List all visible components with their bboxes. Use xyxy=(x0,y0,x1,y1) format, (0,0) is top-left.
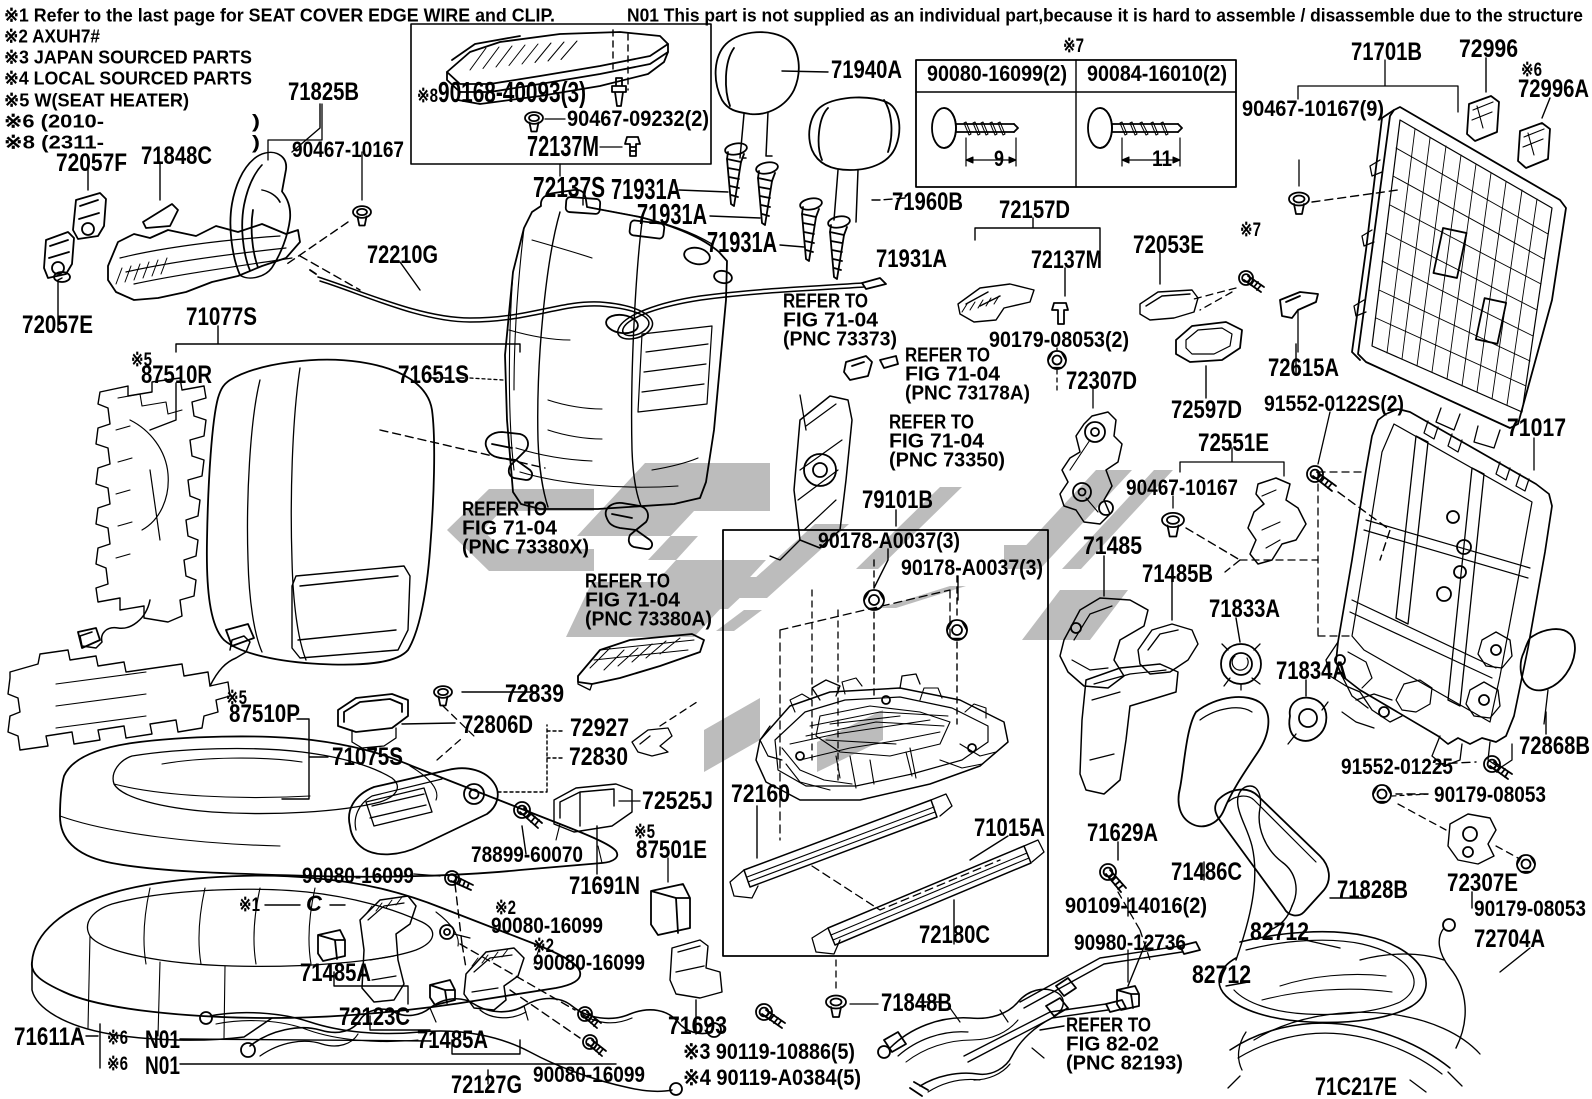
svg-text:71C217E: 71C217E xyxy=(1315,1074,1397,1099)
svg-text:72996A: 72996A xyxy=(1518,76,1589,103)
svg-text:71629A: 71629A xyxy=(1087,820,1158,847)
svg-text:72307D: 72307D xyxy=(1066,368,1137,395)
svg-text:72525J: 72525J xyxy=(642,788,713,815)
svg-text:91552-01225: 91552-01225 xyxy=(1341,754,1453,779)
svg-text:72123C: 72123C xyxy=(339,1004,410,1031)
svg-text:72137M: 72137M xyxy=(527,131,599,163)
svg-text:72127G: 72127G xyxy=(451,1072,522,1099)
svg-text:90080-16099: 90080-16099 xyxy=(533,1062,645,1087)
svg-text:90179-08053(2): 90179-08053(2) xyxy=(989,327,1129,352)
svg-text:72868B: 72868B xyxy=(1519,733,1590,760)
svg-text:90179-08053: 90179-08053 xyxy=(1434,782,1546,807)
svg-text:90084-16010(2): 90084-16010(2) xyxy=(1087,61,1227,86)
svg-text:71485: 71485 xyxy=(1083,533,1142,560)
svg-text:72157D: 72157D xyxy=(999,197,1070,224)
svg-text:90080-16099: 90080-16099 xyxy=(491,913,603,938)
svg-text:72210G: 72210G xyxy=(367,242,438,269)
svg-text:78899-60070: 78899-60070 xyxy=(471,842,583,867)
svg-text:90080-16099: 90080-16099 xyxy=(302,863,414,888)
svg-text:82712: 82712 xyxy=(1192,962,1251,989)
svg-text:71834A: 71834A xyxy=(1276,658,1347,685)
svg-text:90467-10167: 90467-10167 xyxy=(1126,475,1238,500)
svg-text:72160: 72160 xyxy=(731,781,790,808)
svg-text:72057E: 72057E xyxy=(22,312,93,339)
svg-text:90467-10167(9): 90467-10167(9) xyxy=(1242,96,1384,121)
svg-text:※2 AXUH7#: ※2 AXUH7# xyxy=(4,26,100,47)
svg-text:72806D: 72806D xyxy=(462,712,533,739)
svg-text:※3 JAPAN SOURCED PARTS: ※3 JAPAN SOURCED PARTS xyxy=(4,47,252,68)
svg-text:72830: 72830 xyxy=(569,744,628,771)
svg-text:※6: ※6 xyxy=(107,1028,128,1049)
svg-text:90080-16099(2): 90080-16099(2) xyxy=(927,61,1067,86)
svg-text:※4 LOCAL SOURCED PARTS: ※4 LOCAL SOURCED PARTS xyxy=(4,68,252,89)
svg-text:11: 11 xyxy=(1152,146,1172,171)
svg-text:71848C: 71848C xyxy=(141,143,212,170)
svg-text:72704A: 72704A xyxy=(1474,926,1545,953)
svg-text:72137S: 72137S xyxy=(533,172,605,204)
svg-text:71075S: 71075S xyxy=(332,744,403,771)
svg-text:90178-A0037(3): 90178-A0037(3) xyxy=(818,528,960,553)
svg-text:N01: N01 xyxy=(145,1053,180,1080)
svg-text:90467-10167: 90467-10167 xyxy=(292,137,404,162)
svg-text:71931A: 71931A xyxy=(876,246,947,273)
svg-text:(PNC 82193): (PNC 82193) xyxy=(1066,1053,1183,1075)
svg-text:71485A: 71485A xyxy=(300,960,371,987)
svg-text:71833A: 71833A xyxy=(1209,596,1280,623)
svg-text:72180C: 72180C xyxy=(919,922,990,949)
svg-text:90467-09232(2): 90467-09232(2) xyxy=(567,106,709,131)
svg-text:72996: 72996 xyxy=(1459,36,1518,63)
svg-text:79101B: 79101B xyxy=(862,487,933,514)
svg-text:C: C xyxy=(306,891,323,916)
svg-text:72307E: 72307E xyxy=(1447,870,1518,897)
svg-text:90179-08053: 90179-08053 xyxy=(1474,896,1586,921)
svg-text:90178-A0037(3): 90178-A0037(3) xyxy=(901,555,1043,580)
svg-text:71848B: 71848B xyxy=(881,990,952,1017)
svg-text:71701B: 71701B xyxy=(1351,39,1422,66)
svg-text:72927: 72927 xyxy=(570,715,629,742)
svg-text:※5 W(SEAT HEATER): ※5 W(SEAT HEATER) xyxy=(4,90,189,111)
svg-text:(PNC 73373): (PNC 73373) xyxy=(783,329,897,351)
svg-text:(PNC 73178A): (PNC 73178A) xyxy=(905,383,1030,405)
svg-text:71693: 71693 xyxy=(668,1013,727,1040)
svg-text:72839: 72839 xyxy=(505,681,564,708)
svg-text:90080-16099: 90080-16099 xyxy=(533,950,645,975)
svg-text:71931A: 71931A xyxy=(707,227,777,259)
svg-text:71485A: 71485A xyxy=(417,1027,488,1054)
svg-text:※1: ※1 xyxy=(239,895,260,916)
svg-text:※7: ※7 xyxy=(1240,220,1261,241)
svg-text:): ) xyxy=(252,132,260,153)
svg-text:72615A: 72615A xyxy=(1268,355,1339,382)
svg-text:71017: 71017 xyxy=(1507,415,1566,442)
svg-text:): ) xyxy=(252,111,260,132)
svg-text:9: 9 xyxy=(994,146,1004,171)
svg-text:71486C: 71486C xyxy=(1171,859,1242,886)
svg-text:72053E: 72053E xyxy=(1133,232,1204,259)
svg-text:72057F: 72057F xyxy=(56,150,127,177)
svg-text:(PNC 73380X): (PNC 73380X) xyxy=(462,537,589,559)
svg-text:N01 This part is not supplied: N01 This part is not supplied as an indi… xyxy=(627,5,1583,26)
svg-text:82712: 82712 xyxy=(1250,919,1309,946)
svg-text:※7: ※7 xyxy=(1063,36,1084,57)
svg-text:87501E: 87501E xyxy=(636,837,707,864)
svg-text:87510R: 87510R xyxy=(141,362,212,389)
svg-text:71940A: 71940A xyxy=(831,57,902,84)
svg-text:72551E: 72551E xyxy=(1198,430,1269,457)
svg-text:71931A: 71931A xyxy=(637,199,707,231)
svg-text:※8: ※8 xyxy=(417,86,438,107)
svg-text:※3 90119-10886(5): ※3 90119-10886(5) xyxy=(683,1039,855,1064)
svg-text:(PNC 73380A): (PNC 73380A) xyxy=(585,609,712,631)
svg-text:71015A: 71015A xyxy=(974,815,1045,842)
svg-text:71611A: 71611A xyxy=(14,1024,85,1051)
svg-text:N01: N01 xyxy=(145,1027,180,1054)
svg-text:(PNC 73350): (PNC 73350) xyxy=(889,450,1005,472)
svg-text:71825B: 71825B xyxy=(288,79,359,106)
svg-text:※6: ※6 xyxy=(107,1054,128,1075)
svg-text:72137M: 72137M xyxy=(1031,247,1102,274)
svg-text:71485B: 71485B xyxy=(1142,561,1213,588)
svg-text:91552-0122S(2): 91552-0122S(2) xyxy=(1264,391,1404,416)
svg-text:※6 (2010-: ※6 (2010- xyxy=(4,111,104,132)
svg-text:87510P: 87510P xyxy=(229,701,300,728)
svg-text:※1 Refer to the last page for: ※1 Refer to the last page for SEAT COVER… xyxy=(4,5,555,26)
svg-text:71828B: 71828B xyxy=(1337,877,1408,904)
svg-text:71960B: 71960B xyxy=(892,189,963,216)
svg-text:90980-12736: 90980-12736 xyxy=(1074,930,1186,955)
svg-text:90109-14016(2): 90109-14016(2) xyxy=(1065,893,1207,918)
svg-text:72597D: 72597D xyxy=(1171,397,1242,424)
svg-text:71077S: 71077S xyxy=(186,304,257,331)
svg-text:71691N: 71691N xyxy=(569,873,640,900)
svg-text:※4 90119-A0384(5): ※4 90119-A0384(5) xyxy=(683,1065,861,1090)
svg-text:71651S: 71651S xyxy=(398,362,469,389)
svg-text:90168-40093(3): 90168-40093(3) xyxy=(438,77,586,109)
